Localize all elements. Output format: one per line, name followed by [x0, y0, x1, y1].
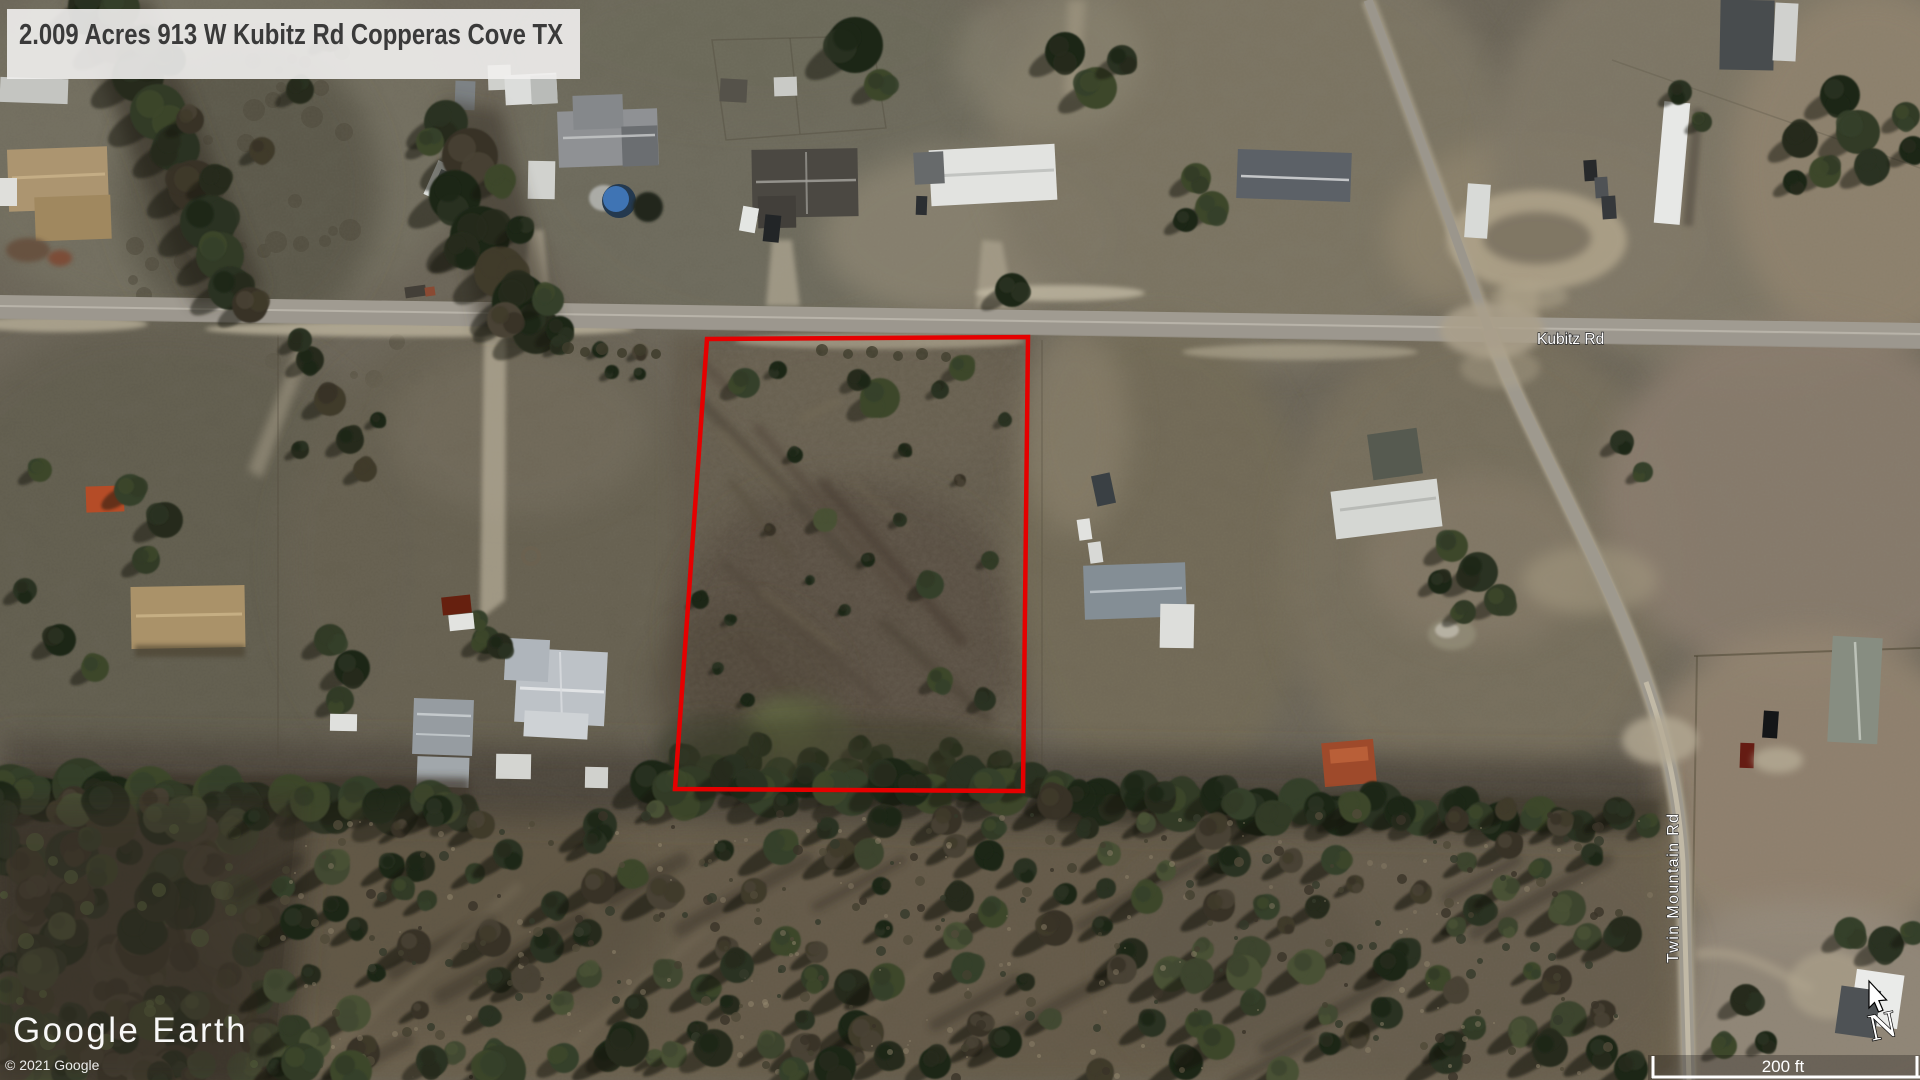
- svg-text:Google Earth: Google Earth: [13, 1011, 248, 1050]
- svg-text:Kubitz Rd: Kubitz Rd: [1537, 331, 1604, 348]
- svg-text:2.009 Acres 913 W Kubitz Rd Co: 2.009 Acres 913 W Kubitz Rd Copperas Cov…: [19, 19, 564, 51]
- svg-text:© 2021 Google: © 2021 Google: [5, 1057, 100, 1073]
- svg-text:200 ft: 200 ft: [1762, 1057, 1805, 1076]
- svg-text:Twin Mountain Rd: Twin Mountain Rd: [1665, 813, 1682, 963]
